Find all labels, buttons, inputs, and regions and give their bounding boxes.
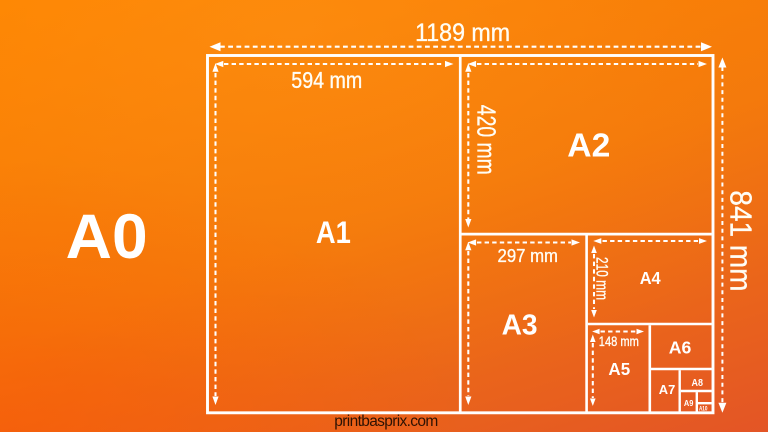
svg-text:210 mm: 210 mm xyxy=(593,257,612,300)
svg-text:841 mm: 841 mm xyxy=(724,190,759,291)
svg-text:A0: A0 xyxy=(66,202,148,272)
svg-text:A6: A6 xyxy=(669,338,692,358)
svg-text:148 mm: 148 mm xyxy=(599,333,639,349)
svg-text:A4: A4 xyxy=(640,268,661,288)
svg-text:594 mm: 594 mm xyxy=(291,67,362,93)
svg-text:297 mm: 297 mm xyxy=(498,245,559,266)
svg-text:A5: A5 xyxy=(608,359,630,379)
svg-text:420 mm: 420 mm xyxy=(471,105,501,175)
svg-text:A9: A9 xyxy=(684,398,694,408)
svg-text:A1: A1 xyxy=(316,214,351,250)
svg-text:A8: A8 xyxy=(692,378,704,389)
svg-text:A10: A10 xyxy=(699,405,708,412)
svg-text:1189 mm: 1189 mm xyxy=(415,19,510,47)
svg-text:A7: A7 xyxy=(659,382,676,397)
svg-text:A3: A3 xyxy=(502,309,538,341)
svg-text:printbasprix.com: printbasprix.com xyxy=(334,413,438,430)
svg-text:A2: A2 xyxy=(567,126,610,163)
